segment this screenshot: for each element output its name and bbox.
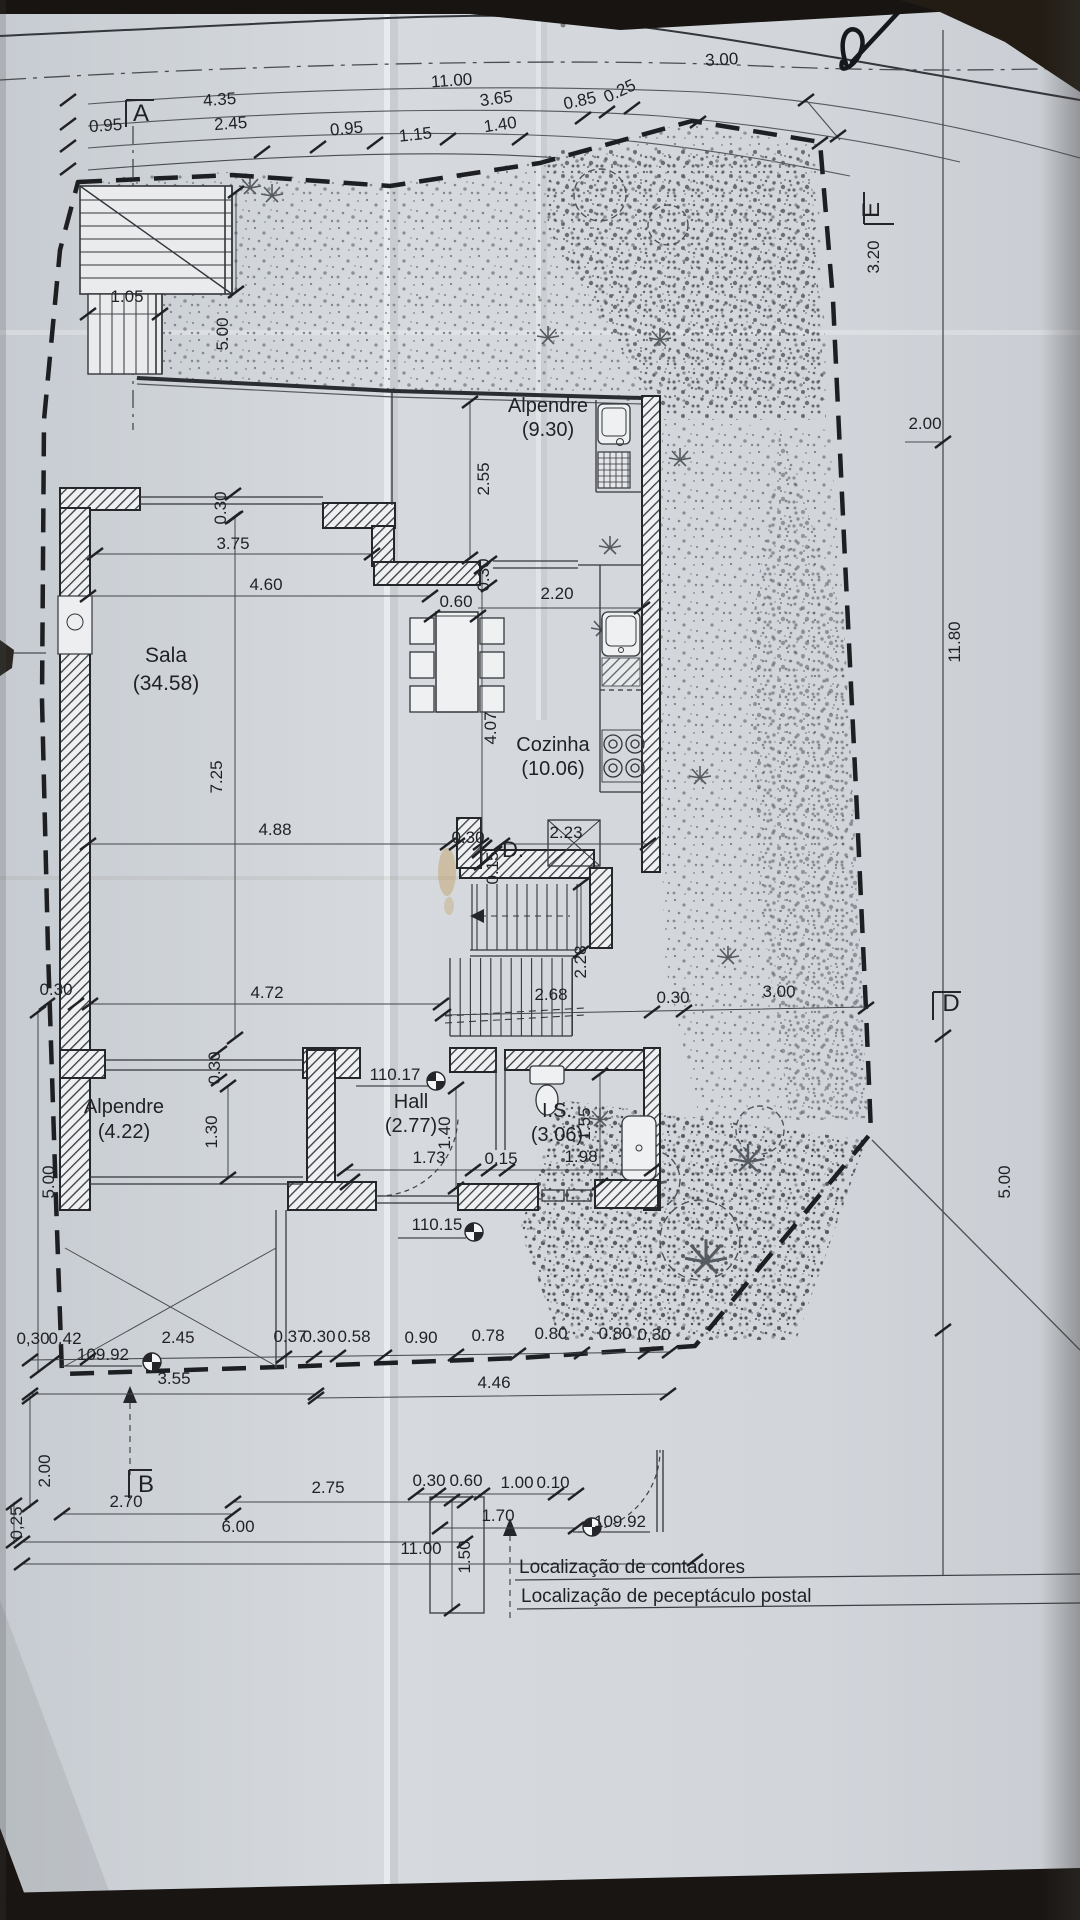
dimension-label: 2.23 (549, 823, 582, 842)
dimension-label: 0.30 (205, 1051, 224, 1084)
dimension-label: 0.30 (412, 1471, 445, 1490)
section-marker-e: E (858, 202, 885, 218)
dimension-label: 7.25 (207, 760, 226, 793)
dimension-label: 1.73 (412, 1148, 445, 1167)
dimension-label: 11.00 (430, 70, 473, 92)
dimension-label: 6.00 (221, 1517, 254, 1536)
dimension-label: 4.07 (481, 711, 500, 744)
dimension-label: 0.30 (211, 491, 230, 524)
dimension-label: 0,30 (637, 1325, 670, 1344)
note-contadores: Localização de contadores (519, 1557, 745, 1578)
level-label: 109.92 (594, 1512, 646, 1531)
room-area-sala: (34.58) (133, 672, 200, 695)
dimension-label: 1.05 (110, 287, 143, 306)
dimension-label: 3.20 (864, 240, 883, 273)
level-label: 110.17 (370, 1065, 421, 1084)
dimension-label: 4.46 (477, 1373, 510, 1392)
dimension-label: 0.30 (474, 558, 493, 591)
dimension-label: 0.60 (449, 1471, 482, 1490)
dimension-label: 0.95 (329, 118, 364, 140)
level-label: 110.15 (412, 1215, 463, 1234)
room-area-alpendre-1: (9.30) (522, 419, 574, 441)
dimension-label: 4.60 (249, 575, 282, 594)
level-label: 109.92 (77, 1345, 129, 1364)
dimension-label: 0,25 (7, 1506, 26, 1539)
dimension-label: 2.00 (35, 1454, 54, 1487)
dimension-label: 5.00 (39, 1165, 58, 1198)
dimension-label: 2.68 (534, 985, 567, 1004)
dimension-label: 0.80 (598, 1324, 631, 1343)
dimension-label: 11.80 (945, 621, 964, 662)
dimension-label: 0.90 (404, 1328, 437, 1347)
floor-plan-drawing: 11.004.353.653.000.952.450.951.151.400.8… (0, 0, 1080, 1920)
kitchen-sink (602, 612, 640, 686)
dimension-label: 4.72 (250, 983, 283, 1002)
dimension-label: 1.98 (564, 1147, 597, 1166)
dimension-label: 2.00 (908, 414, 941, 433)
dimension-label: 0.15 (484, 1149, 517, 1168)
dimension-label: 3.55 (157, 1369, 190, 1388)
dimension-label: 1.50 (455, 1540, 474, 1573)
dimension-label: 1.00 (500, 1473, 533, 1492)
room-label-cozinha: Cozinha (516, 734, 590, 756)
dimension-label: 1.15 (398, 123, 433, 145)
dimension-label: 0.30 (39, 980, 72, 999)
note-postal: Localização de peceptáculo postal (521, 1586, 811, 1607)
dimension-label: 0,30 (16, 1329, 49, 1348)
floor-plan-photo: 11.004.353.653.000.952.450.951.151.400.8… (0, 0, 1080, 1920)
section-marker-d: D (942, 990, 959, 1017)
room-label-is: I.S. (542, 1100, 572, 1122)
dimension-label: 0.80 (534, 1324, 567, 1343)
dimension-label: 4.88 (258, 820, 291, 839)
dimension-label: 0.60 (439, 592, 472, 611)
dimension-label: 1.40 (435, 1116, 454, 1149)
dimension-label: 2.28 (571, 945, 590, 978)
room-label-hall: Hall (394, 1091, 428, 1113)
dimension-label: 0.95 (88, 115, 122, 136)
dimension-label: 1.30 (202, 1115, 221, 1148)
dimension-label: 2.75 (311, 1478, 344, 1497)
dimension-label: 2.45 (213, 113, 247, 134)
room-area-is: (3.06) (531, 1124, 583, 1146)
room-area-cozinha: (10.06) (521, 758, 584, 780)
dimension-label: 0.15 (483, 851, 502, 884)
dimension-label: 3.00 (762, 982, 795, 1001)
dimension-label: 0.30 (302, 1327, 335, 1346)
room-area-hall: (2.77) (385, 1115, 437, 1137)
dining-table (410, 612, 504, 712)
dimension-label: 3.75 (216, 534, 249, 553)
dimension-label: 2.55 (474, 462, 493, 495)
dimension-label: 4.35 (202, 89, 236, 110)
dimension-label: 0.58 (337, 1327, 370, 1346)
dimension-label: 5.00 (213, 317, 232, 350)
room-area-alpendre-2: (4.22) (98, 1121, 150, 1143)
dimension-label: 0.30 (451, 828, 484, 847)
room-label-sala: Sala (145, 644, 187, 667)
dimension-label: 3.00 (705, 49, 739, 70)
dimension-label: 2.45 (161, 1328, 194, 1347)
dimension-label: 11.00 (400, 1539, 441, 1558)
dimension-label: 0.10 (536, 1473, 569, 1492)
dimension-label: 2.70 (109, 1492, 142, 1511)
dimension-label: 1.70 (481, 1506, 514, 1525)
dimension-label: 2.20 (540, 584, 573, 603)
dimension-label: 5.00 (995, 1165, 1014, 1198)
dimension-label: 0.78 (471, 1326, 504, 1345)
section-marker-d-interior: D. (502, 837, 524, 862)
dimension-label: 0.30 (656, 988, 689, 1007)
room-label-alpendre-1: Alpendre (508, 395, 588, 417)
room-label-alpendre-2: Alpendre (84, 1096, 164, 1118)
wood-stove (58, 596, 92, 654)
section-marker-a: A (133, 100, 149, 127)
